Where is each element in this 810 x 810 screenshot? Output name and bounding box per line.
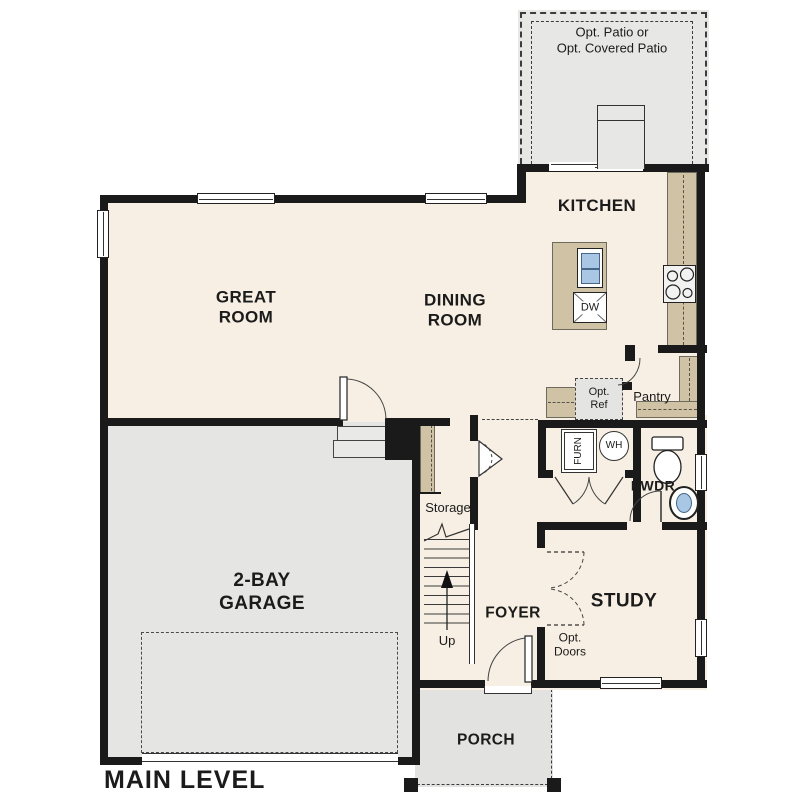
label-opt-doors: Opt. Doors bbox=[554, 631, 586, 660]
wall-hall-top bbox=[538, 420, 707, 428]
island-sink bbox=[577, 248, 603, 288]
dining-room-line2: ROOM bbox=[424, 311, 486, 331]
wall-pantry-top bbox=[658, 345, 707, 353]
wall-study-left-a bbox=[537, 530, 545, 548]
wall-foyer-bottom-a bbox=[412, 680, 485, 688]
label-dishwasher: DW bbox=[580, 301, 600, 314]
range-stove bbox=[663, 265, 696, 303]
garage-entry-step-2 bbox=[333, 440, 391, 458]
garage-door bbox=[142, 753, 398, 762]
wall-garage-bottom-left bbox=[100, 757, 142, 765]
opt-doors-line2: Doors bbox=[554, 645, 586, 659]
wall-powder-left bbox=[633, 428, 641, 522]
wall-garage-left bbox=[100, 426, 108, 765]
wall-closet-vert-upper bbox=[470, 415, 478, 441]
ref-side-counter bbox=[546, 387, 576, 418]
garage-line1: 2-BAY bbox=[219, 570, 305, 593]
opt-doors-line1: Opt. bbox=[554, 631, 586, 645]
dining-room-line1: DINING bbox=[424, 291, 486, 311]
great-room-line1: GREAT bbox=[216, 288, 276, 308]
porch-dashed-right-edge bbox=[551, 689, 552, 784]
hall-open-boundary-dashed bbox=[482, 419, 538, 420]
window-great-room-top-1 bbox=[197, 193, 275, 204]
stairs-treads bbox=[424, 539, 470, 632]
window-great-room-top-2 bbox=[425, 193, 487, 204]
wall-furnace-bottom-a bbox=[538, 470, 553, 478]
fireplace-chimney bbox=[597, 105, 645, 169]
wall-garage-top-a bbox=[100, 418, 343, 426]
wall-study-left-b bbox=[537, 627, 545, 688]
wall-study-top-a bbox=[537, 522, 627, 530]
label-opt-ref: Opt. Ref bbox=[589, 386, 610, 412]
stairs-stringer bbox=[469, 524, 475, 664]
window-study-right bbox=[695, 619, 707, 657]
label-opt-patio: Opt. Patio or Opt. Covered Patio bbox=[557, 24, 668, 55]
label-garage: 2-BAY GARAGE bbox=[219, 570, 305, 616]
garage-door-dashed-outline bbox=[141, 632, 398, 753]
mudroom-bench-end bbox=[420, 492, 441, 494]
wall-garage-right bbox=[412, 420, 420, 765]
wall-study-bottom-b bbox=[662, 680, 707, 688]
label-storage: Storage bbox=[425, 500, 471, 516]
label-furnace: FURN bbox=[573, 437, 585, 465]
wall-pantry-door-stop bbox=[622, 382, 632, 390]
label-dining-room: DINING ROOM bbox=[424, 291, 486, 332]
label-porch: PORCH bbox=[457, 732, 515, 751]
label-pantry: Pantry bbox=[633, 389, 671, 405]
wall-closet-vert-lower bbox=[470, 477, 478, 530]
garage-entry-step-1 bbox=[337, 426, 387, 441]
opt-ref-line1: Opt. bbox=[589, 386, 610, 399]
plan-title: MAIN LEVEL bbox=[104, 766, 265, 795]
window-powder-right bbox=[695, 454, 707, 491]
front-door-threshold bbox=[484, 686, 532, 694]
floor-plan-canvas: GREAT ROOM DINING ROOM KITCHEN 2-BAY GAR… bbox=[0, 0, 810, 810]
label-foyer: FOYER bbox=[485, 605, 540, 624]
great-room-line2: ROOM bbox=[216, 308, 276, 328]
wall-pantry-door-stub bbox=[625, 345, 635, 361]
opt-patio-line2: Opt. Covered Patio bbox=[557, 40, 668, 56]
porch-post-left bbox=[404, 778, 418, 792]
porch-dashed-bottom-edge bbox=[412, 784, 553, 785]
opt-patio-line1: Opt. Patio or bbox=[557, 24, 668, 40]
label-kitchen: KITCHEN bbox=[558, 196, 636, 216]
garage-line2: GARAGE bbox=[219, 593, 305, 616]
label-water-heater: WH bbox=[606, 440, 623, 452]
label-great-room: GREAT ROOM bbox=[216, 288, 276, 329]
label-stairs-up: Up bbox=[439, 633, 456, 649]
porch-post-right bbox=[547, 778, 561, 792]
mudroom-bench bbox=[420, 423, 435, 493]
wall-study-bottom-a bbox=[537, 680, 600, 688]
kitchen-wall-counter bbox=[667, 172, 697, 348]
label-powder: PWDR bbox=[631, 478, 675, 495]
window-study-bottom bbox=[600, 677, 662, 689]
label-study: STUDY bbox=[591, 591, 657, 614]
window-great-room-left bbox=[97, 210, 109, 258]
opt-ref-line2: Ref bbox=[589, 399, 610, 412]
wall-study-top-b bbox=[662, 522, 707, 530]
